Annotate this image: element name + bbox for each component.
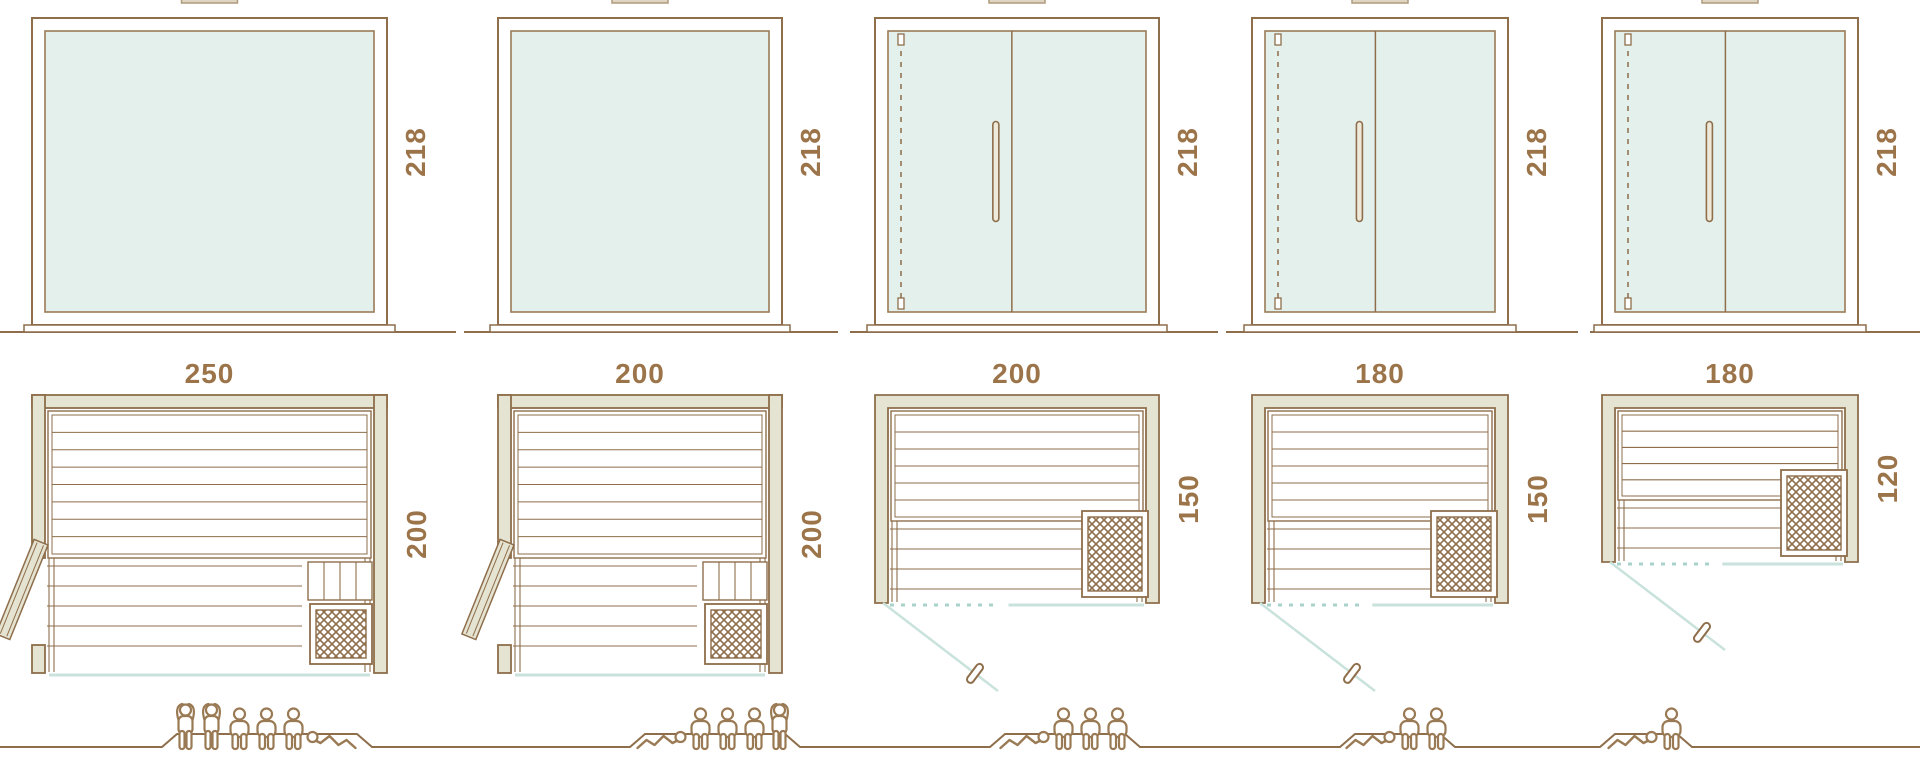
plan-width-label: 200 [615,358,665,389]
plan-depth-label: 120 [1872,454,1903,504]
glass-front [888,31,1146,312]
plan-depth-label: 150 [1522,474,1553,524]
person-seated-icon [1109,709,1127,750]
door-handle-icon [993,122,999,222]
glass-door-swing-line [883,603,998,691]
door-hinge-bottom-icon [898,298,904,309]
sauna-wall [32,395,387,408]
roof-vent-tab [989,0,1045,3]
floor-plan: 180120 [1602,358,1903,650]
person-seated-icon [1401,709,1419,750]
sauna-180x120: 218180120 [1594,0,1903,749]
elevation-sill [24,325,395,332]
heater-icon [1787,476,1841,550]
person-seated-icon [692,709,710,750]
sauna-wall [32,395,45,558]
person-seated-icon [719,709,737,750]
door-leaf [462,539,514,639]
sauna-wall [498,395,782,408]
person-seated-icon [1428,709,1446,750]
elevation-view: 218 [1244,0,1552,332]
elevation-view: 218 [24,0,431,332]
floor-plan: 180150 [1252,358,1553,691]
elevation-sill [1594,325,1866,332]
sauna-wall [769,395,782,673]
elevation-height-label: 218 [1871,127,1902,177]
door-hinge-bottom-icon [1625,298,1631,309]
glass-door-swing-line [1610,562,1725,650]
sauna-wall [498,395,511,558]
elevation-view: 218 [867,0,1203,332]
glass-front [1615,31,1845,312]
sauna-180x150: 218180150 [1244,0,1553,749]
person-seated-icon [285,709,303,750]
plan-width-label: 200 [992,358,1042,389]
door-hinge-top-icon [1275,34,1281,45]
glass-front [45,31,374,312]
heater-icon [1088,517,1142,591]
glass-door-swing-line [1260,603,1375,691]
heater-icon [711,610,761,658]
elevation-height-label: 218 [795,127,826,177]
door-handle-icon [1343,663,1362,685]
glass-front [511,31,769,312]
elevation-sill [1244,325,1516,332]
capacity-icons [638,704,788,749]
door-hinge-top-icon [898,34,904,45]
capacity-icons [1609,709,1681,750]
elevation-height-label: 218 [1521,127,1552,177]
person-seated-icon [231,709,249,750]
person-seated-icon [1663,709,1681,750]
plan-depth-label: 150 [1173,474,1204,524]
roof-vent-tab [1702,0,1758,3]
sauna-200x200: 218200200 [462,0,827,749]
door-hinge-top-icon [1625,34,1631,45]
door-handle-icon [1356,122,1362,222]
person-seated-icon [258,709,276,750]
heater-icon [316,610,366,658]
roof-vent-tab [612,0,668,3]
person-seated-icon [1055,709,1073,750]
floor-plan: 200150 [875,358,1204,691]
person-seated-icon [746,709,764,750]
sauna-wall [374,395,387,673]
plan-width-label: 180 [1355,358,1405,389]
sauna-size-diagram: 2182502002182002002182001502181801502181… [0,0,1920,770]
elevation-height-label: 218 [400,127,431,177]
capacity-icons [1347,709,1446,750]
floor-plan: 200200 [462,358,827,675]
person-standing-icon [203,704,220,749]
door-hinge-bottom-icon [1275,298,1281,309]
sauna-200x150: 218200150 [867,0,1204,749]
glass-front [1265,31,1495,312]
sauna-size-diagram-canvas: 2182502002182002002182001502181801502181… [0,0,1920,770]
plan-depth-label: 200 [401,509,432,559]
door-handle-icon [1693,622,1712,644]
plan-width-label: 180 [1705,358,1755,389]
floor-plan: 250200 [0,358,432,675]
capacity-icons [1001,709,1127,750]
person-seated-icon [1082,709,1100,750]
elevation-view: 218 [1594,0,1902,332]
plan-width-label: 250 [185,358,235,389]
sauna-wall [32,645,45,673]
elevation-sill [490,325,790,332]
door-handle-icon [966,663,985,685]
elevation-view: 218 [490,0,826,332]
roof-vent-tab [1352,0,1408,3]
elevation-sill [867,325,1167,332]
person-standing-icon [177,704,194,749]
person-standing-icon [771,704,788,749]
door-handle-icon [1706,122,1712,222]
sauna-wall [498,645,511,673]
heater-icon [1437,517,1491,591]
door-leaf [0,539,48,639]
sauna-250x200: 218250200 [0,0,432,749]
plan-depth-label: 200 [796,509,827,559]
capacity-icons [177,704,355,749]
elevation-height-label: 218 [1172,127,1203,177]
roof-vent-tab [182,0,238,3]
